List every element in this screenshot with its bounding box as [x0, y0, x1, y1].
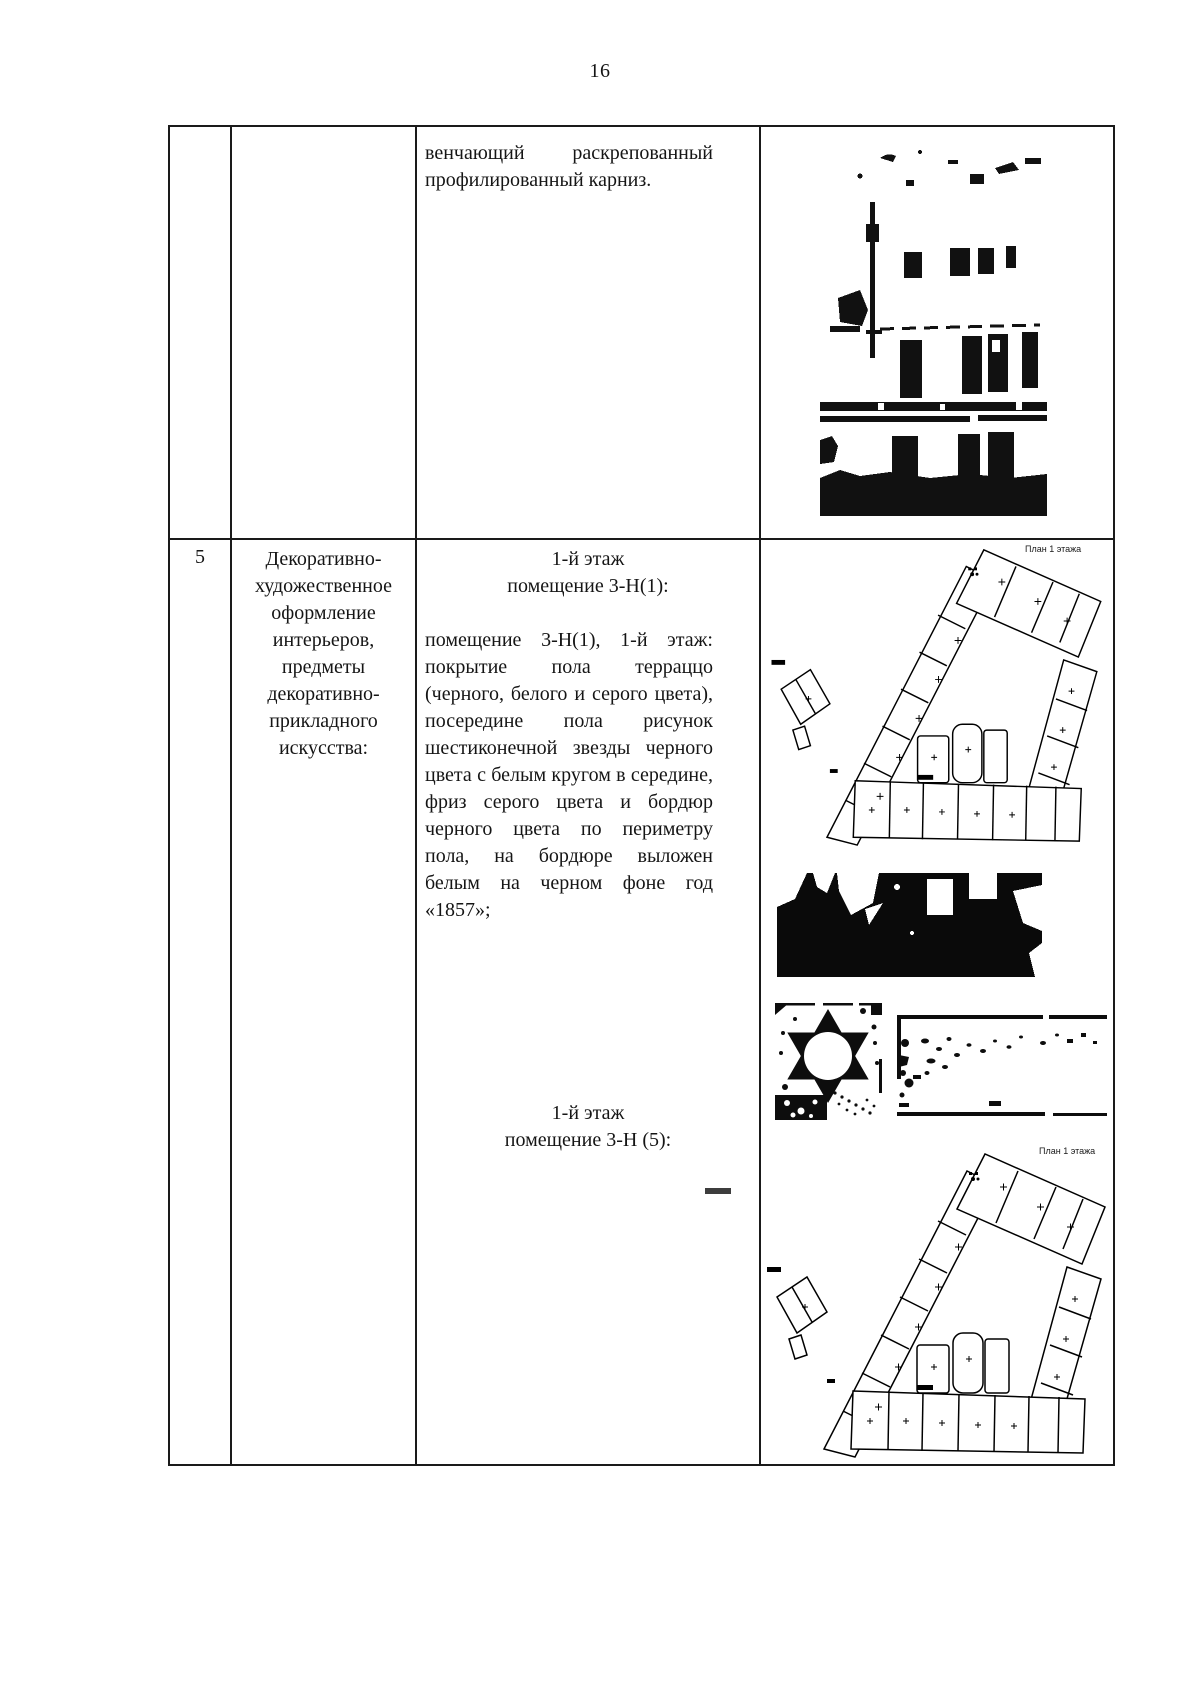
- category-line: декоративно-: [232, 681, 415, 708]
- cell-r1-number: [170, 127, 232, 540]
- floor-plan-2: [767, 1145, 1112, 1463]
- category-line: Декоративно-: [232, 546, 415, 573]
- category-line: художественное: [232, 573, 415, 600]
- star-floor-tile-photo: [775, 1003, 882, 1120]
- heading-floor: 1-й этаж: [417, 1100, 759, 1127]
- cell-r2-category: Декоративно- художественное оформление и…: [232, 540, 417, 1464]
- category-line: интерьеров,: [232, 627, 415, 654]
- cell-r2-number: 5: [170, 540, 232, 1464]
- r1-description-text: венчающий раскрепованный профилированный…: [425, 140, 713, 194]
- document-page: 16 венчающий раскрепованный профилирован…: [0, 0, 1200, 1697]
- tiny-annotation-smudge: [705, 1188, 731, 1194]
- category-line: искусства:: [232, 735, 415, 762]
- cell-r1-description: венчающий раскрепованный профилированный…: [417, 127, 761, 540]
- building-facade-photo: [820, 140, 1047, 516]
- floor-plan-2-label: План 1 этажа: [1039, 1146, 1095, 1156]
- floor-plan-1: [767, 545, 1112, 847]
- heading-room: помещение 3-Н (5):: [417, 1127, 759, 1154]
- r2-description-text: помещение 3-Н(1), 1-й этаж: покрытие пол…: [425, 627, 713, 924]
- category-line: прикладного: [232, 708, 415, 735]
- category-line: оформление: [232, 600, 415, 627]
- section-heading-1: 1-й этаж помещение 3-Н(1):: [417, 540, 759, 600]
- category-line: предметы: [232, 654, 415, 681]
- heading-room: помещение 3-Н(1):: [417, 573, 759, 600]
- floor-plan-1-label: План 1 этажа: [1025, 544, 1081, 554]
- cell-r2-images: План 1 этажа: [761, 540, 1113, 1464]
- row-number: 5: [195, 546, 205, 568]
- cell-r2-description: 1-й этаж помещение 3-Н(1): помещение 3-Н…: [417, 540, 761, 1464]
- section-heading-2: 1-й этаж помещение 3-Н (5):: [417, 1100, 759, 1154]
- floor-border-year-photo: [897, 1015, 1107, 1118]
- document-table: венчающий раскрепованный профилированный…: [168, 125, 1115, 1466]
- cell-r1-category: [232, 127, 417, 540]
- interior-floor-photo: [777, 873, 1042, 977]
- cell-r1-images: [761, 127, 1113, 540]
- page-number: 16: [0, 60, 1200, 83]
- heading-floor: 1-й этаж: [417, 546, 759, 573]
